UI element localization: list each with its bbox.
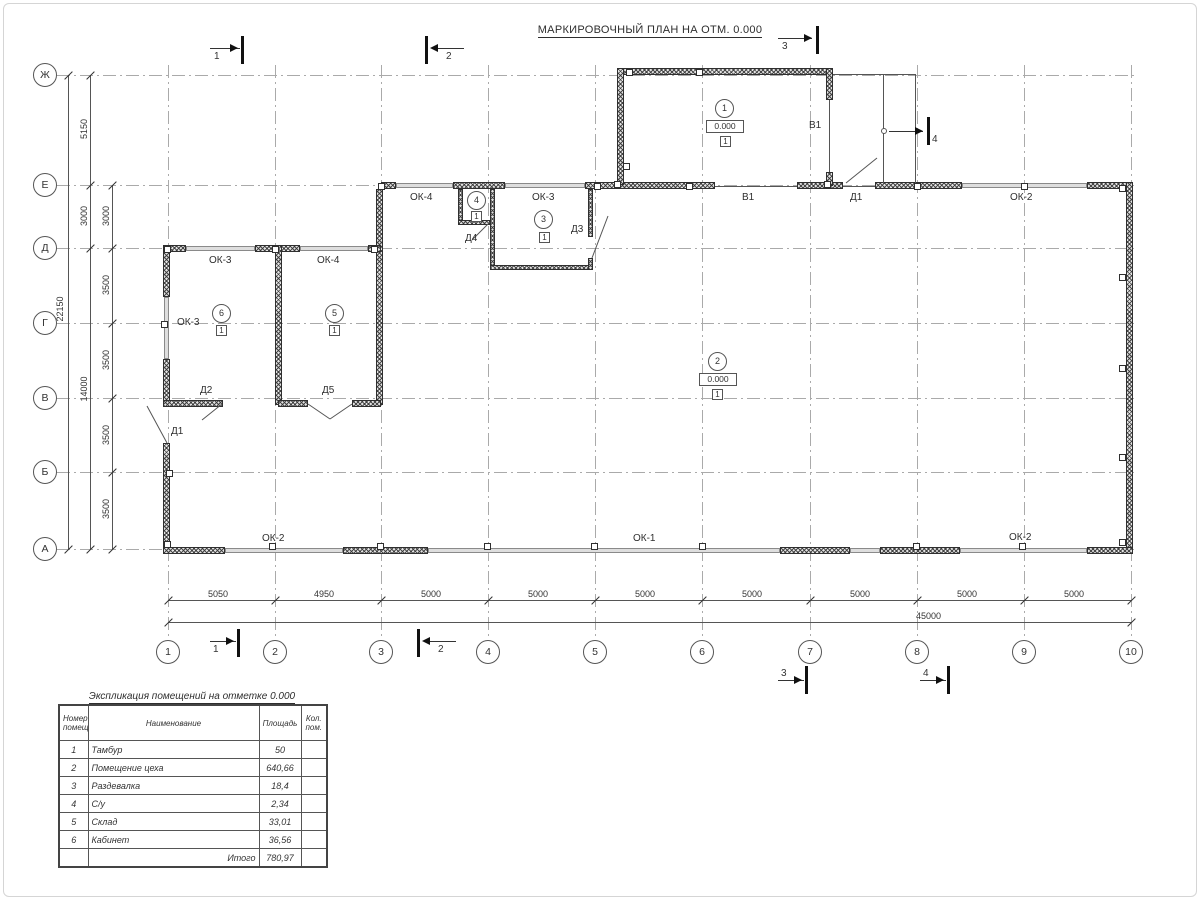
column-marker xyxy=(378,183,385,190)
section-label-3: 3 xyxy=(782,41,788,52)
room-count xyxy=(301,759,327,777)
room-name: Склад xyxy=(88,813,259,831)
wall-segment xyxy=(880,547,960,554)
door-label-d3: Д3 xyxy=(571,224,583,235)
room-number-3: 3 xyxy=(534,210,553,229)
room-count xyxy=(301,777,327,795)
dim-label-total-width: 45000 xyxy=(916,611,941,621)
dim-line-bottom-total xyxy=(168,622,1131,623)
column-marker xyxy=(1119,274,1126,281)
wall-segment xyxy=(163,400,223,407)
table-title-text: Экспликация помещений на отметке 0.000 xyxy=(89,691,295,704)
room-count xyxy=(301,741,327,759)
door-label-d5: Д5 xyxy=(322,385,334,396)
table-row: 6 Кабинет 36,56 xyxy=(59,831,327,849)
table-row: 2 Помещение цеха 640,66 xyxy=(59,759,327,777)
wall-segment xyxy=(617,68,833,75)
column-marker xyxy=(594,183,601,190)
room-name: Помещение цеха xyxy=(88,759,259,777)
wall-segment xyxy=(588,258,593,270)
wall-segment xyxy=(453,182,505,189)
axis-bubble-6: 6 xyxy=(690,640,714,664)
dim-label: 3500 xyxy=(101,405,111,465)
column-marker xyxy=(1119,539,1126,546)
room-number-5: 5 xyxy=(325,304,344,323)
room-number-1: 1 xyxy=(715,99,734,118)
window-label-ok3: ОК-3 xyxy=(532,192,555,203)
room-floor-type-1: 1 xyxy=(720,136,731,147)
axis-bubble-8: 8 xyxy=(905,640,929,664)
axis-bubble-v: В xyxy=(33,386,57,410)
dim-line-bottom xyxy=(168,600,1131,601)
column-marker xyxy=(161,321,168,328)
window-ok3 xyxy=(186,246,255,251)
room-elevation-2: 0.000 xyxy=(699,373,737,386)
dim-label: 14000 xyxy=(79,359,89,419)
room-num: 6 xyxy=(59,831,88,849)
window-label-ok4: ОК-4 xyxy=(317,255,340,266)
column-marker xyxy=(914,183,921,190)
explication-table: Номер помещ. Наименование Площадь Кол. п… xyxy=(58,704,328,868)
window-ok4 xyxy=(300,246,368,251)
axis-bubble-5: 5 xyxy=(583,640,607,664)
section-mark-bar xyxy=(805,666,808,694)
dim-label: 4950 xyxy=(314,589,334,599)
dim-label: 3000 xyxy=(101,186,111,246)
dim-label: 5000 xyxy=(528,589,548,599)
window-label-ok4: ОК-4 xyxy=(410,192,433,203)
section-arrow xyxy=(794,676,802,684)
section-mark-bar xyxy=(816,26,819,54)
section-label-2: 2 xyxy=(446,51,452,62)
total-empty xyxy=(59,849,88,868)
room-count xyxy=(301,795,327,813)
dim-label: 5050 xyxy=(208,589,228,599)
room-number-4: 4 xyxy=(467,191,486,210)
column-marker xyxy=(269,543,276,550)
room-name: Тамбур xyxy=(88,741,259,759)
column-marker xyxy=(614,181,621,188)
window-label-ok2: ОК-2 xyxy=(262,533,285,544)
column-marker xyxy=(166,470,173,477)
room-name: Раздевалка xyxy=(88,777,259,795)
column-marker xyxy=(272,246,279,253)
section-label-1: 1 xyxy=(214,51,220,62)
plan-title: МАРКИРОВОЧНЫЙ ПЛАН НА ОТМ. 0.000 xyxy=(480,20,820,38)
section-label-3: 3 xyxy=(781,668,787,679)
room-floor-type-4: 1 xyxy=(471,211,482,222)
col-header-area: Площадь xyxy=(259,705,301,741)
wall-segment xyxy=(1126,182,1133,553)
door-label-d4: Д4 xyxy=(465,233,477,244)
window xyxy=(850,548,880,553)
section-arrow xyxy=(230,44,238,52)
door-label-d2: Д2 xyxy=(200,385,212,396)
wall-segment xyxy=(163,443,170,549)
column-marker xyxy=(623,163,630,170)
gate-label-v1: В1 xyxy=(742,192,754,203)
total-count xyxy=(301,849,327,868)
room-num: 2 xyxy=(59,759,88,777)
gate-label-v1-side: В1 xyxy=(809,120,821,131)
room-num: 4 xyxy=(59,795,88,813)
axis-bubble-a: А xyxy=(33,537,57,561)
dim-label: 3500 xyxy=(101,479,111,539)
room-area: 36,56 xyxy=(259,831,301,849)
room-count xyxy=(301,813,327,831)
window-label-ok3-side: ОК-3 xyxy=(177,317,200,328)
section-arrow xyxy=(430,44,438,52)
wall-segment xyxy=(490,189,495,270)
col-header-name: Наименование xyxy=(88,705,259,741)
table-row: 1 Тамбур 50 xyxy=(59,741,327,759)
window-label-ok1: ОК-1 xyxy=(633,533,656,544)
col-header-count: Кол. пом. xyxy=(301,705,327,741)
gate-v1-opening-side xyxy=(829,100,830,172)
window-label-ok3: ОК-3 xyxy=(209,255,232,266)
section-arrow xyxy=(915,127,923,135)
room-area: 640,66 xyxy=(259,759,301,777)
axis-line-6 xyxy=(702,65,703,640)
axis-line-4 xyxy=(488,65,489,640)
column-marker xyxy=(824,181,831,188)
room-area: 33,01 xyxy=(259,813,301,831)
col-header-num: Номер помещ. xyxy=(59,705,88,741)
table-row: 5 Склад 33,01 xyxy=(59,813,327,831)
axis-bubble-b: Б xyxy=(33,460,57,484)
room-floor-type-6: 1 xyxy=(216,325,227,336)
wall-segment xyxy=(163,547,225,554)
column-marker xyxy=(1021,183,1028,190)
total-label: Итого xyxy=(88,849,259,868)
column-marker xyxy=(1019,543,1026,550)
section-ref-dot xyxy=(881,128,887,134)
dim-label: 5000 xyxy=(850,589,870,599)
table-row: 4 С/у 2,34 xyxy=(59,795,327,813)
axis-line-zh xyxy=(57,75,1138,76)
dim-label: 5000 xyxy=(635,589,655,599)
column-marker xyxy=(696,69,703,76)
plan-title-text: МАРКИРОВОЧНЫЙ ПЛАН НА ОТМ. 0.000 xyxy=(538,24,763,38)
column-marker xyxy=(686,183,693,190)
room-elevation-1: 0.000 xyxy=(706,120,744,133)
axis-line-b xyxy=(57,472,1138,473)
dim-label-total-height: 22150 xyxy=(55,279,65,339)
dim-label: 5000 xyxy=(1064,589,1084,599)
section-mark-bar xyxy=(417,629,420,657)
column-marker xyxy=(591,543,598,550)
wall-segment xyxy=(278,400,308,407)
column-marker xyxy=(913,543,920,550)
door-d1-opening xyxy=(843,186,875,187)
section-arrow xyxy=(422,637,430,645)
room-count xyxy=(301,831,327,849)
section-label-2: 2 xyxy=(438,644,444,655)
section-mark-line xyxy=(438,48,464,49)
room-number-6: 6 xyxy=(212,304,231,323)
axis-bubble-d: Д xyxy=(33,236,57,260)
wall-segment xyxy=(275,245,282,405)
dim-label: 3500 xyxy=(101,330,111,390)
window-label-ok2: ОК-2 xyxy=(1010,192,1033,203)
axis-bubble-zh: Ж xyxy=(33,63,57,87)
section-arrow xyxy=(226,637,234,645)
column-marker xyxy=(1119,185,1126,192)
section-arrow xyxy=(936,676,944,684)
gate-v1-opening xyxy=(715,186,797,187)
room-number-2: 2 xyxy=(708,352,727,371)
axis-bubble-e: Е xyxy=(33,173,57,197)
axis-bubble-4: 4 xyxy=(476,640,500,664)
column-marker xyxy=(371,246,378,253)
section-mark-bar xyxy=(241,36,244,64)
section-label-1: 1 xyxy=(213,644,219,655)
axis-bubble-g: Г xyxy=(33,311,57,335)
door-label-d1-west: Д1 xyxy=(171,426,183,437)
column-marker xyxy=(164,541,171,548)
room-floor-type-2: 1 xyxy=(712,389,723,400)
column-marker xyxy=(626,69,633,76)
window-ok1 xyxy=(428,548,780,553)
dim-line-left-a xyxy=(90,75,91,549)
dim-label: 5000 xyxy=(742,589,762,599)
section-mark-bar xyxy=(425,36,428,64)
column-marker xyxy=(484,543,491,550)
room-floor-type-3: 1 xyxy=(539,232,550,243)
dim-label: 5000 xyxy=(957,589,977,599)
table-row: 3 Раздевалка 18,4 xyxy=(59,777,327,795)
axis-bubble-7: 7 xyxy=(798,640,822,664)
axis-bubble-9: 9 xyxy=(1012,640,1036,664)
axis-bubble-2: 2 xyxy=(263,640,287,664)
axis-line-5 xyxy=(595,65,596,640)
column-marker xyxy=(1119,454,1126,461)
section-mark-bar xyxy=(927,117,930,145)
room-num: 3 xyxy=(59,777,88,795)
column-marker xyxy=(1119,365,1126,372)
axis-bubble-1: 1 xyxy=(156,640,180,664)
wall-segment xyxy=(352,400,381,407)
dim-label: 3500 xyxy=(101,255,111,315)
wall-segment xyxy=(376,189,383,405)
wall-segment xyxy=(588,189,593,237)
room-num: 1 xyxy=(59,741,88,759)
window-label-ok2: ОК-2 xyxy=(1009,532,1032,543)
room-area: 18,4 xyxy=(259,777,301,795)
wall-segment xyxy=(1087,547,1133,554)
section-mark-bar xyxy=(237,629,240,657)
section-mark-line xyxy=(430,641,456,642)
window-ok4 xyxy=(396,183,453,188)
dim-line-left-total xyxy=(68,75,69,549)
wall-segment xyxy=(780,547,850,554)
wall-segment xyxy=(490,265,593,270)
room-num: 5 xyxy=(59,813,88,831)
table-total-row: Итого 780,97 xyxy=(59,849,327,868)
section-label-4: 4 xyxy=(923,668,929,679)
table-header-row: Номер помещ. Наименование Площадь Кол. п… xyxy=(59,705,327,741)
table-title: Экспликация помещений на отметке 0.000 xyxy=(58,686,326,704)
room-area: 50 xyxy=(259,741,301,759)
column-marker xyxy=(164,246,171,253)
axis-line-g xyxy=(57,323,1138,324)
room-name: Кабинет xyxy=(88,831,259,849)
section-mark-bar xyxy=(947,666,950,694)
axis-line-v xyxy=(57,398,1138,399)
wall-segment xyxy=(826,68,833,100)
drawing-sheet: МАРКИРОВОЧНЫЙ ПЛАН НА ОТМ. 0.000 Ж Е Д Г… xyxy=(0,0,1200,900)
wall-segment xyxy=(585,182,715,189)
dim-label: 3000 xyxy=(79,186,89,246)
room-area: 2,34 xyxy=(259,795,301,813)
room-floor-type-5: 1 xyxy=(329,325,340,336)
axis-bubble-10: 10 xyxy=(1119,640,1143,664)
window-ok3 xyxy=(505,183,585,188)
dim-line-left-b xyxy=(112,185,113,549)
dim-label: 5150 xyxy=(79,99,89,159)
column-marker xyxy=(377,543,384,550)
window-ok3-side xyxy=(164,297,169,359)
section-arrow xyxy=(804,34,812,42)
room-name: С/у xyxy=(88,795,259,813)
wall-segment xyxy=(343,547,428,554)
door-label-d1: Д1 xyxy=(850,192,862,203)
section-label-4: 4 xyxy=(932,134,938,145)
column-marker xyxy=(699,543,706,550)
dim-label: 5000 xyxy=(421,589,441,599)
wall-segment xyxy=(797,182,843,189)
window-ok2 xyxy=(225,548,343,553)
axis-line-9 xyxy=(1024,65,1025,640)
total-value: 780,97 xyxy=(259,849,301,868)
canopy-line xyxy=(833,74,915,75)
axis-bubble-3: 3 xyxy=(369,640,393,664)
